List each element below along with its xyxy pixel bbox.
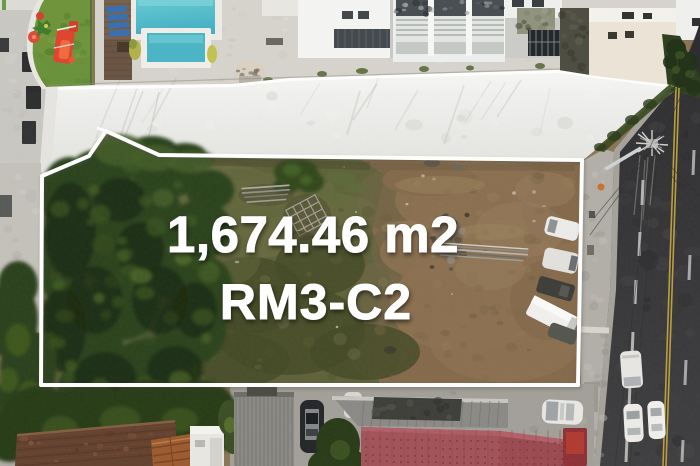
- svg-text:1,674.46 m2: 1,674.46 m2: [167, 206, 459, 263]
- svg-text:RM3-C2: RM3-C2: [220, 274, 412, 330]
